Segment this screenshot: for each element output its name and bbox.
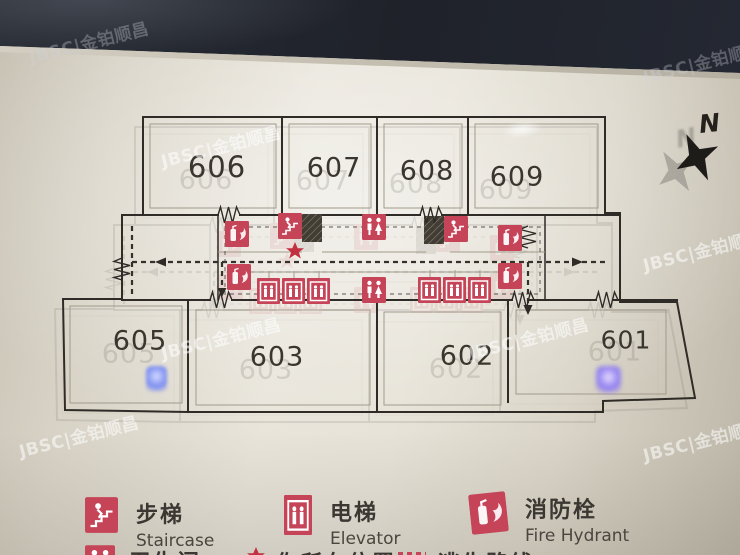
room-label-602: 602 [440, 341, 495, 372]
staircase-icon [85, 497, 118, 533]
room-label-608: 608 [400, 156, 455, 187]
led-reflection [596, 366, 621, 393]
legend-zh: 逃生路线 [438, 546, 534, 555]
legend-item-you-are-here: 你所在位置 [246, 546, 396, 555]
legend-en: Fire Hydrant [525, 526, 629, 546]
room-label-605: 605 [113, 326, 168, 357]
legend-zh: 步梯 [136, 497, 214, 529]
room-label-606: 606 [188, 150, 246, 184]
legend-item-elevator: 电梯 Elevator [284, 495, 400, 549]
legend-item-toilet: 卫生间 [85, 545, 201, 555]
legend-zh: 卫生间 [129, 545, 201, 555]
toilet-icon [85, 545, 115, 555]
floor-plan-sign-photo: 606 607 608 609 605 603 602 601 606 607 … [0, 0, 740, 555]
room-label-607: 607 [307, 153, 362, 184]
led-reflection [146, 366, 167, 392]
elevator-icon [284, 495, 312, 535]
legend-item-staircase: 步梯 Staircase [85, 497, 214, 551]
floor-plan [0, 0, 740, 555]
legend-zh: 电梯 [330, 495, 400, 527]
room-label-603: 603 [250, 342, 305, 373]
legend-item-escape-route: 逃生路线 [398, 546, 534, 555]
room-label-609: 609 [490, 162, 545, 193]
legend-zh: 你所在位置 [276, 546, 396, 555]
legend-zh: 消防栓 [525, 492, 629, 524]
room-label-601: 601 [601, 326, 652, 355]
compass-n-label: N [698, 108, 722, 139]
fire-hydrant-icon [468, 490, 509, 536]
you-are-here-star-icon [246, 546, 266, 555]
legend-item-fire-hydrant: 消防栓 Fire Hydrant [470, 492, 629, 546]
